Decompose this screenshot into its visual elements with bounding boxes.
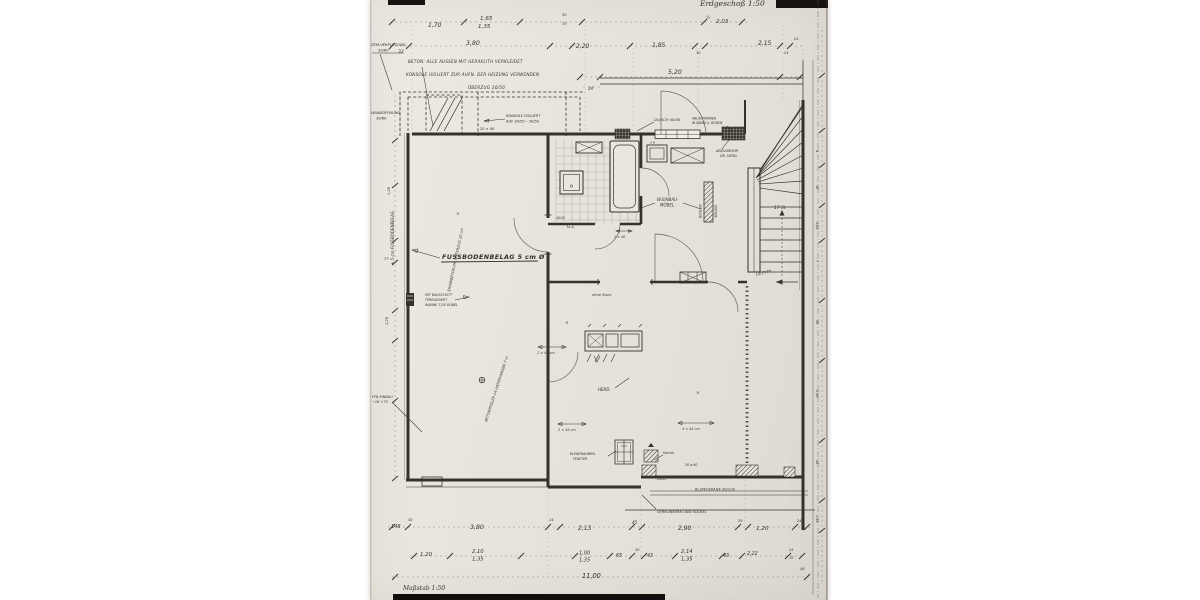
terrace-hatch: [430, 98, 462, 131]
note-ablauf: ABLAUFRINNEN: [691, 117, 717, 121]
dim-bottom-small: 24: [797, 519, 802, 523]
label-3080: 30 a 80: [584, 485, 598, 489]
dim-top-small: 70: [562, 22, 567, 26]
note-abzugrohr: ÜB. HERD: [720, 153, 737, 158]
label-ab-box: A B: [649, 141, 655, 145]
screenshot-stage: Erdgeschoß 1:50 1,70 1,65 1,35 30 70 ½ 2…: [0, 0, 1200, 600]
dim-bottom-small: 45: [632, 520, 638, 525]
scale-note: Maßstab 1:50: [402, 585, 445, 592]
note-einbaumoebel: MÖBEL: [660, 203, 674, 208]
label-blendrahmen: FENSTER: [573, 457, 587, 461]
label-verklinkern: VERKLINKERN UND SOCKEL: [657, 510, 707, 514]
dim-right: 45: [815, 460, 819, 464]
dim-bottom-small: 48: [800, 567, 805, 571]
dim-bottom: 2,22: [747, 551, 758, 557]
dim-bottom-total: 11,00: [582, 572, 601, 580]
label-herd: HERD.: [598, 387, 611, 392]
dim-top: 1,85: [652, 42, 666, 49]
dim-bottom: 1,35: [579, 558, 590, 564]
arrow-dim-label: 2 × 45 cm: [537, 351, 555, 355]
hall-box: [671, 148, 704, 163]
label-blendrahmen: BLENDRAHMEN-: [570, 452, 597, 456]
dim-top-small: ½: [706, 15, 710, 20]
bath-sink: [560, 171, 583, 194]
dim-top-small: 24: [784, 51, 789, 55]
dim-right: 1,35: [815, 515, 819, 523]
label-2048: 20 a 80: [685, 463, 698, 467]
bath-stove-box: [576, 142, 602, 153]
label-blumenbank: BLUMENBANK BUCHE: [695, 488, 736, 492]
wall-dim: 20 × 86: [480, 127, 495, 131]
dim-left: 77: [384, 256, 389, 261]
dim-top: 2,20: [576, 43, 590, 50]
fixtures: [560, 141, 713, 362]
dim-left: 1,28: [387, 186, 391, 195]
dim-top: 2,03: [716, 19, 729, 25]
note-konsole2: KONSOLE ISOLIERT: [506, 114, 541, 118]
dim-bottom-small: 12: [789, 556, 793, 560]
dim-top: 2,15: [758, 40, 772, 47]
x-mark: ×: [565, 320, 569, 326]
dim-bottom: 65: [616, 553, 622, 559]
note-diagonal-pfeiler: BETONPFEILER 14 UNTERFANGEN 7 m: [484, 355, 509, 422]
dimension-lines: [388, 0, 822, 598]
x-mark: ×: [696, 390, 700, 396]
dim-bottom: 2,13: [578, 525, 592, 532]
dim-right: 7: [815, 260, 819, 263]
label-kamin: Kamin: [663, 451, 675, 455]
dim-top: 5,20: [668, 69, 682, 76]
dim-top-small: 24: [588, 86, 594, 91]
dim-right: 30: [815, 185, 819, 189]
dim-top: 3,80: [466, 40, 480, 47]
dim-bottom: 1,20: [420, 552, 433, 558]
label-boiler-dim: 400/400: [714, 205, 718, 218]
dim-bottom-small: 14: [549, 518, 554, 522]
dim-bottom-small: 30: [635, 548, 640, 552]
x-mark: ×: [456, 211, 460, 217]
stair-step-label: 14/17/26: [755, 269, 772, 277]
floorplan-drawing: Erdgeschoß 1:50 1,70 1,65 1,35 30 70 ½ 2…: [370, 0, 828, 600]
kitchen-counter: [585, 324, 642, 362]
dim-bottom-small: 30: [408, 518, 413, 522]
arrow-dim-label: 4 × 45 cm: [682, 427, 700, 431]
floorplan-paper: Erdgeschoß 1:50 1,70 1,65 1,35 30 70 ½ 2…: [370, 0, 828, 600]
dim-bottom: 1,35: [472, 557, 484, 563]
dim-right: 30: [815, 320, 819, 324]
dim-bottom: 2,10: [472, 549, 484, 555]
label-2025: 20/25: [657, 477, 667, 481]
dim-bottom: 2,14: [681, 549, 693, 555]
dim-bottom-small: 14: [789, 548, 793, 552]
note-einbaumoebel: W.EINBAU-: [657, 197, 679, 202]
dim-top-small: 24: [794, 37, 799, 41]
note-bauschutt: TERRASSIERT: [425, 298, 448, 302]
circled-plus-symbol: [479, 377, 485, 383]
label-4045: 40/45: [556, 216, 565, 220]
dim-bottom: 3,80: [470, 524, 484, 531]
note-konsole2: AUF 30/50 – 30/50: [505, 120, 540, 124]
note-beton: BETON: ALLE AUSSEN MIT HERAKLITH VERKLEI…: [408, 59, 523, 64]
dim-top-small: 30: [696, 51, 701, 55]
cut-off-title-note: Erdgeschoß 1:50: [699, 0, 765, 8]
dim-top: 1,35: [478, 24, 491, 30]
dim-bottom: 1,20: [756, 526, 769, 532]
note-wandoeffnung: 30/60: [376, 117, 387, 121]
dim-top: 1,70: [428, 22, 442, 29]
stair-count-label: 17 St: [774, 205, 786, 211]
note-ffb: −18 +75: [372, 400, 389, 404]
note-konsole: KONSOLE ISOLIERT ZUR AUFN. DER HEIZUNG V…: [406, 72, 539, 77]
label-ohne-sturz: ohne Sturz: [592, 293, 612, 297]
dimension-ticks: [389, 19, 825, 580]
arrow-dim-label: 2 × 45 cm: [558, 428, 576, 432]
dim-bottom: 1,35: [681, 557, 693, 563]
label-boiler: BOILER: [698, 204, 703, 218]
dim-bottom: 2,90: [678, 525, 692, 532]
note-ffb: FFB EINBAU: [372, 395, 393, 399]
note-dusche: DU/SCH 40/40: [654, 118, 681, 122]
staircase: [748, 104, 803, 285]
dim-top-small: 30: [562, 13, 567, 17]
note-zem: 30/60: [378, 49, 389, 53]
dim-right: 1,85: [815, 222, 819, 230]
hall-cabinet: [647, 145, 667, 162]
arrow-dim-label: 1 × 40: [614, 235, 625, 239]
dim-right: 2,90: [815, 390, 819, 398]
note-ablauf: IN WAND U. BODEN: [692, 121, 723, 125]
note-wandoeffnung: WANDÖFFNUNG: [371, 110, 400, 115]
note-left-wall-vertical: ± 5 cm FUSSBODENBELAG: [390, 211, 395, 265]
note-bauschutt: WANNE 7/30 DÜBEL: [425, 302, 458, 307]
boiler: [704, 182, 713, 222]
label-gl: G.L.: [567, 224, 575, 229]
note-zem: ZEM.VERPUTZUNG: [370, 43, 406, 47]
dim-bottom: 43: [723, 553, 729, 559]
note-abzugrohr: ABZUGROHR: [715, 149, 739, 153]
dim-left: 1,20: [385, 316, 389, 325]
bathtub: [610, 141, 639, 212]
dim-bottom: 1,00: [579, 551, 590, 557]
dim-top: 32: [398, 49, 404, 55]
note-ueberzug: ÜBERZUG 30/50: [468, 85, 505, 90]
dim-bottom: 43: [647, 553, 653, 559]
dim-bottom-small: 29: [738, 519, 743, 523]
plan-symbols: [479, 377, 485, 383]
dim-top: 1,65: [480, 16, 493, 22]
drawing-text: Erdgeschoß 1:50 1,70 1,65 1,35 30 70 ½ 2…: [370, 0, 819, 592]
dim-bottom: 148: [391, 524, 401, 530]
note-bauschutt: MIT BAUSCHUTT: [425, 293, 453, 297]
dim-right: 8: [815, 150, 819, 153]
